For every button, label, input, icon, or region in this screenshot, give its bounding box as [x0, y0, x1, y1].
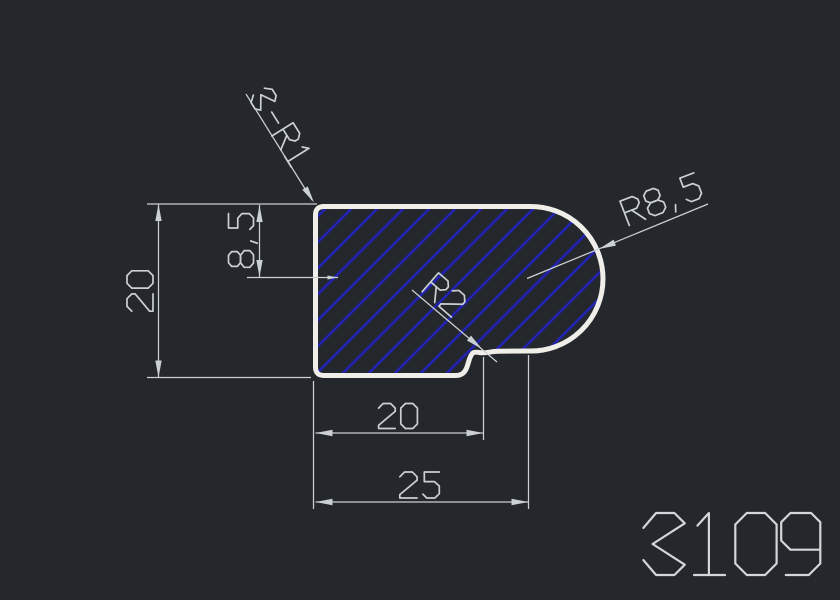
technical-drawing	[0, 0, 840, 600]
drawing-background	[0, 0, 840, 600]
cad-drawing-canvas: 3109	[0, 0, 840, 600]
